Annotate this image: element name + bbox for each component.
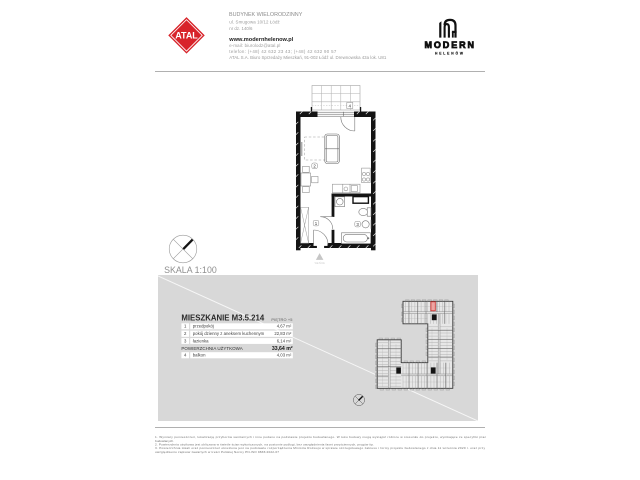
svg-text:22,83 m²: 22,83 m² xyxy=(274,331,292,336)
svg-text:SKALA 1:100: SKALA 1:100 xyxy=(164,265,217,275)
svg-text:PIĘTRO +5: PIĘTRO +5 xyxy=(271,317,292,322)
svg-text:WEJŚCIE: WEJŚCIE xyxy=(315,262,326,264)
svg-text:1. Wymiary pomieszczeń, lokali: 1. Wymiary pomieszczeń, lokalizację przy… xyxy=(155,435,486,439)
svg-text:POWIERZCHNIA UŻYTKOWA: POWIERZCHNIA UŻYTKOWA xyxy=(181,345,242,351)
svg-text:4,67 m²: 4,67 m² xyxy=(277,324,292,329)
svg-text:6,14 m²: 6,14 m² xyxy=(277,338,292,343)
svg-text:HELENÓW: HELENÓW xyxy=(435,51,464,56)
svg-text:MODERN: MODERN xyxy=(425,40,475,50)
svg-text:MIESZKANIE M3.5.214: MIESZKANIE M3.5.214 xyxy=(181,313,264,322)
svg-text:33,64 m²: 33,64 m² xyxy=(272,346,293,352)
svg-text:4,03 m²: 4,03 m² xyxy=(277,353,292,358)
svg-text:pokój dzienny z aneksem kuchen: pokój dzienny z aneksem kuchennym xyxy=(193,331,265,336)
svg-text:ul. Smugowa 10/12 Łódź: ul. Smugowa 10/12 Łódź xyxy=(229,19,279,24)
svg-text:e-mail: biurolodz@atal.pl: e-mail: biurolodz@atal.pl xyxy=(229,43,280,48)
svg-text:telefon: (+48) 42 632 23 43; (: telefon: (+48) 42 632 23 43; (+48) 42 63… xyxy=(229,49,337,54)
svg-text:balkon: balkon xyxy=(193,353,206,358)
svg-text:łazienka: łazienka xyxy=(193,338,209,343)
svg-text:ATAL S.A. Biuro Sprzedaży Mies: ATAL S.A. Biuro Sprzedaży Mieszkań, 91-0… xyxy=(229,55,387,60)
svg-text:przedpokój: przedpokój xyxy=(193,324,214,329)
svg-text:nr dz. 140/6: nr dz. 140/6 xyxy=(229,26,253,31)
svg-text:ATAL: ATAL xyxy=(175,31,198,41)
svg-text:uwzględnieniu zapisów zawartyc: uwzględnieniu zapisów zawartych w treści… xyxy=(155,450,279,454)
svg-text:BUDYNEK WIELORODZINNY: BUDYNEK WIELORODZINNY xyxy=(229,12,303,18)
